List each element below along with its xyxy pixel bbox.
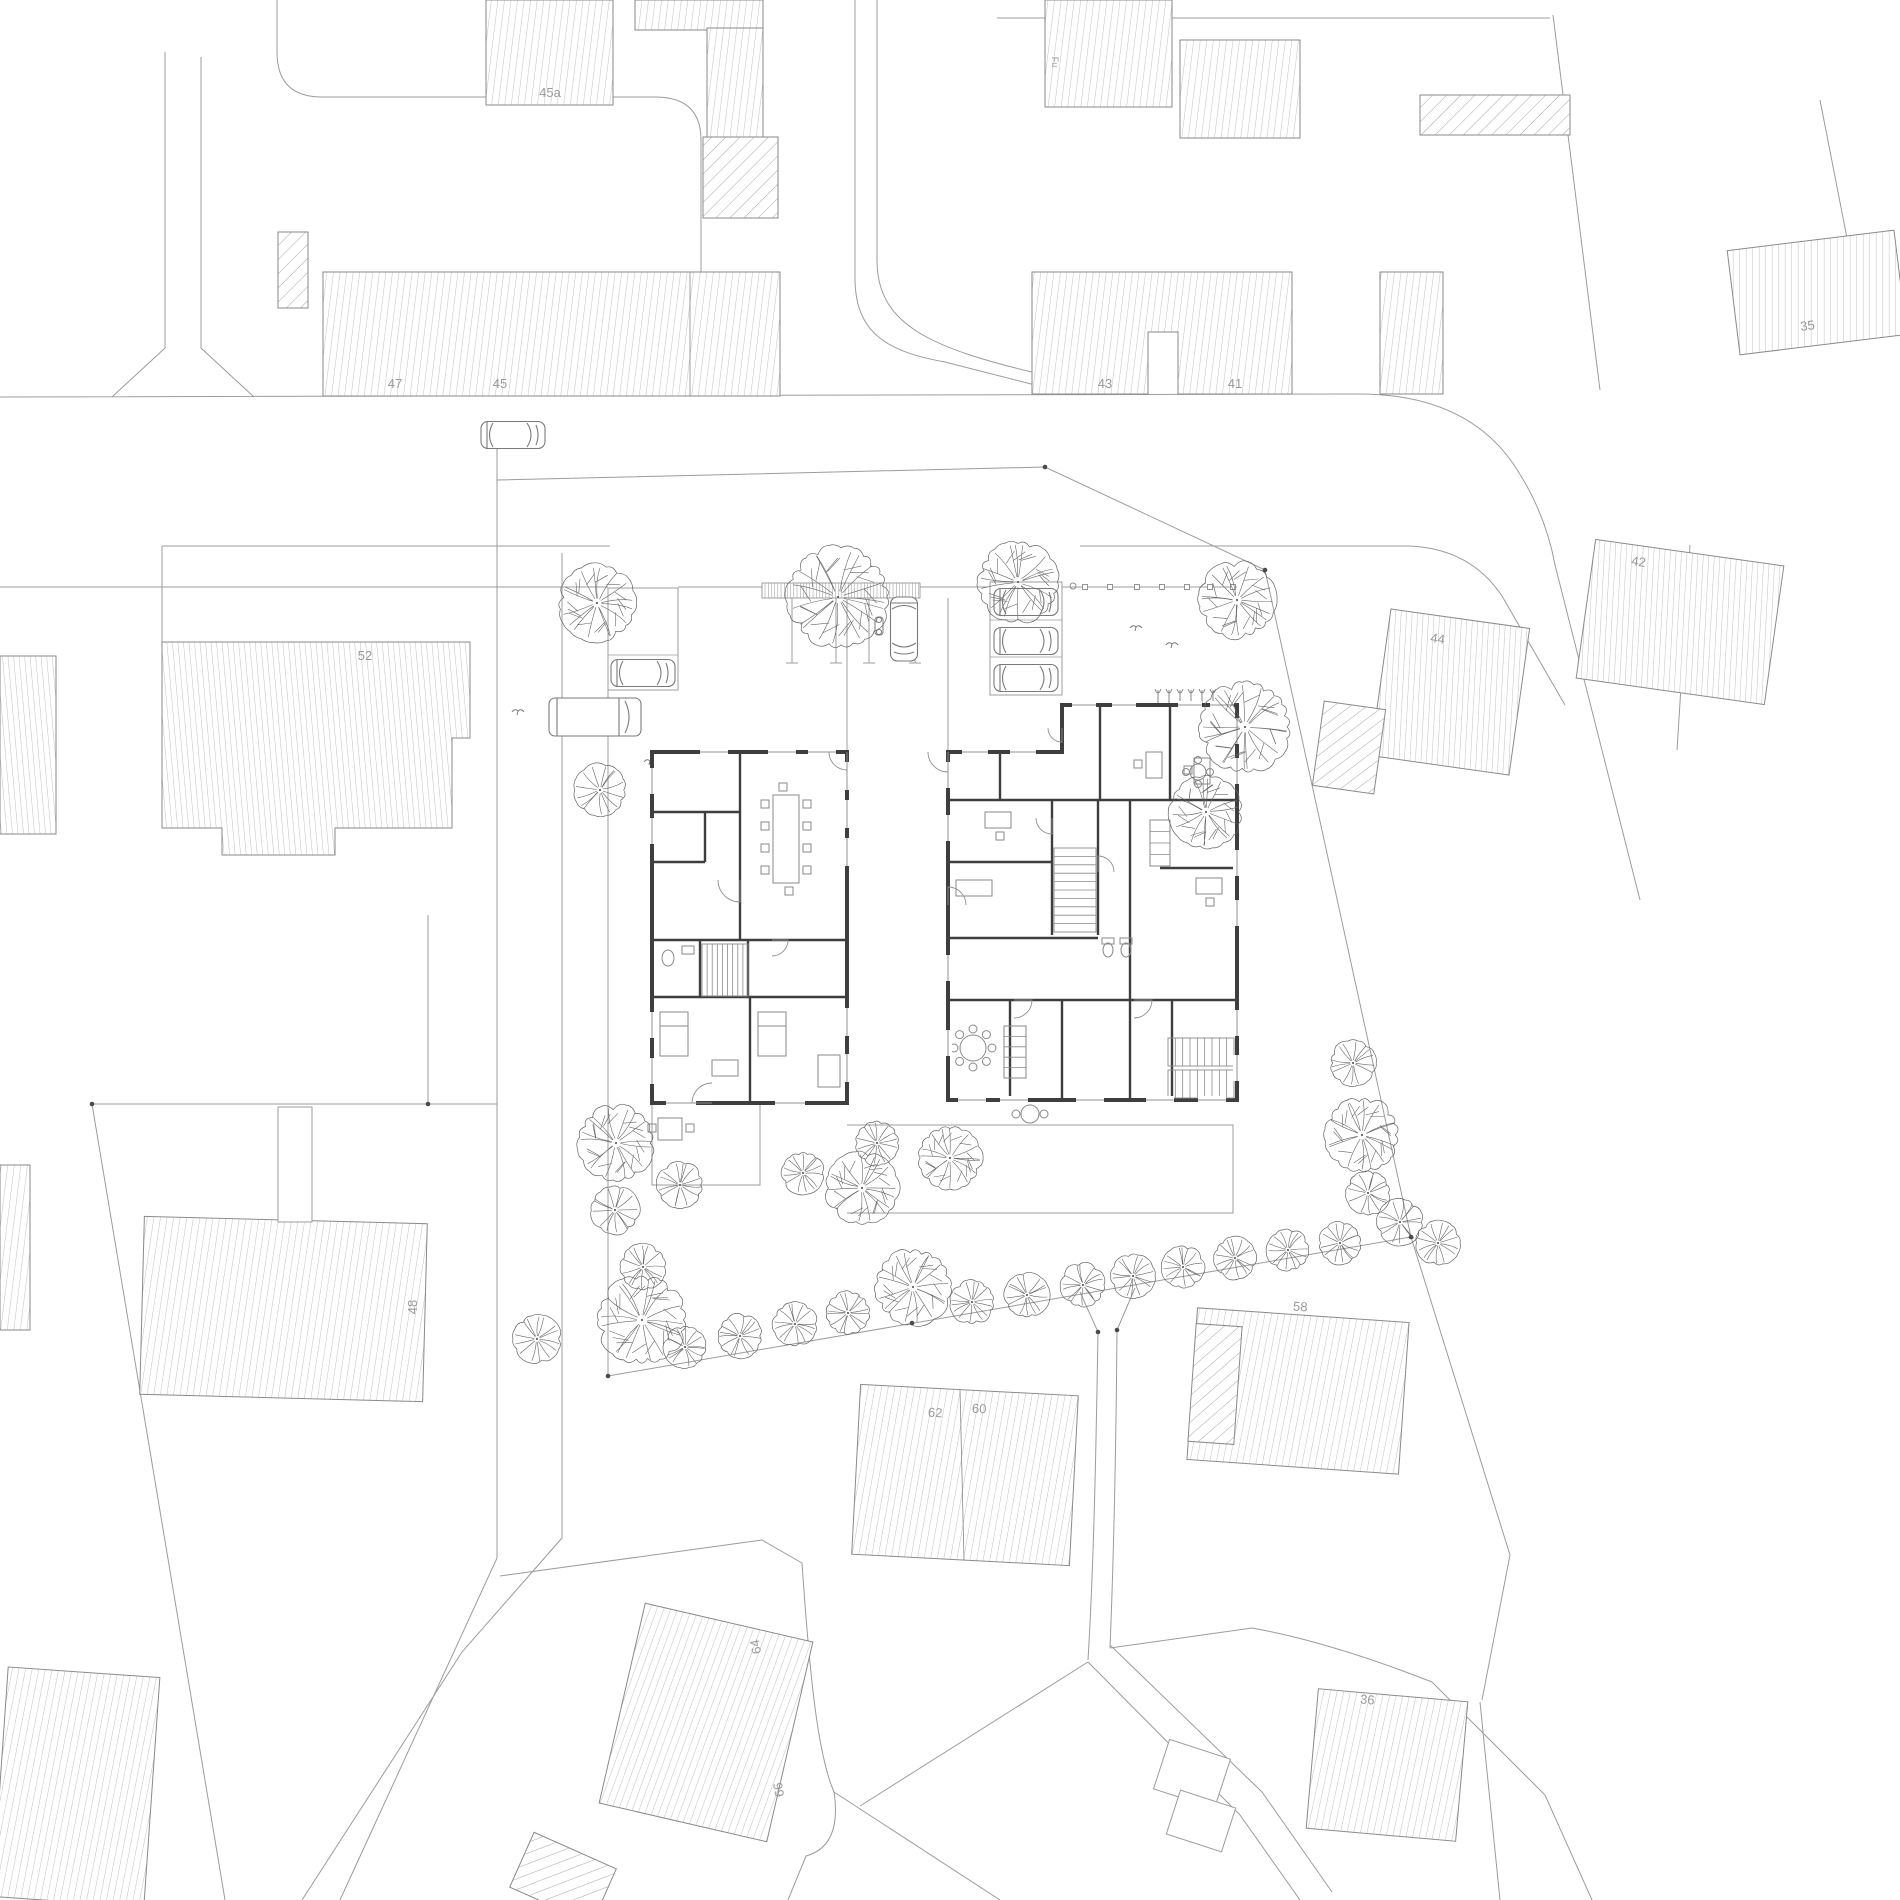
tree-icon [513,1314,561,1363]
flower-icon [1155,689,1161,703]
fence-post [1108,585,1113,590]
neighbor-building [599,1603,813,1841]
house-number-label: 41 [1228,376,1242,391]
tree-icon [1004,1272,1050,1317]
site-plan-drawing: 45a47454341Fu3552444248626058646636 [0,0,1900,1900]
house-number-label: 45 [493,376,507,391]
car-icon [611,660,675,687]
boundary-dot [1096,1330,1101,1335]
house-number-label: 42 [1630,553,1646,570]
tree-icon [826,1291,869,1335]
house-number-label: 58 [1293,1299,1308,1315]
neighbor-building [707,28,763,138]
tree-icon [772,1302,817,1346]
road-line [1088,1332,1098,1660]
fence-post [1135,585,1140,590]
tree-icon [874,1250,951,1327]
tree-icon [1324,1099,1398,1172]
boundary-dot [910,1321,915,1326]
flower-icon [1166,689,1172,703]
tree-icon [781,1152,824,1195]
neighbor-building [0,1165,30,1330]
tree-icon [591,1186,641,1235]
neighbor-building [1380,272,1443,394]
neighbor-building [1188,1324,1242,1445]
road-line [112,52,165,397]
neighbor-building [1420,95,1570,135]
site-plan: 45a47454341Fu3552444248626058646636 [0,0,1900,1900]
furniture [1021,1105,1039,1123]
neighbor-building [162,642,470,855]
neighbor-building [1576,539,1784,704]
road-line [652,1103,760,1185]
neighbor-building [635,0,763,30]
road-line [855,0,1035,385]
furniture [658,1118,682,1140]
neighbor-building [1370,609,1529,775]
road-line [1080,1292,1098,1332]
road-line [1117,1288,1135,1330]
furniture [686,1124,694,1132]
road-line [1553,15,1600,390]
boundary-dot [426,1102,431,1107]
house-number-label: 52 [358,648,372,663]
fence-post [1083,585,1088,590]
tree-icon [718,1313,761,1359]
neighbor-building [510,1832,617,1900]
bird-icon [1130,626,1142,631]
neighbor-building [703,137,778,218]
furniture [1012,1110,1020,1118]
tree-icon [950,1280,993,1324]
car-icon [481,422,545,449]
road-line [834,1792,1000,1900]
road-line [847,1125,1233,1213]
fence-post [1208,585,1213,590]
fence-post [1160,585,1165,590]
tree-icon [1319,1221,1360,1265]
site-marker [1070,583,1076,589]
tree-icon [559,563,637,643]
bird-icon [1166,643,1178,648]
neighbor-building [852,1384,1079,1565]
road-line [860,1662,1088,1806]
house-number-label: 64 [747,1638,764,1655]
boundary-dot [1409,1235,1414,1240]
neighbor-building [140,1216,428,1401]
main-building-left [648,748,851,1140]
flower-icon [1210,689,1216,703]
boundary-dot [1115,1328,1120,1333]
road-line [1480,1702,1500,1900]
tree-icon [1266,1229,1309,1271]
tree-icon [1416,1220,1461,1265]
van-icon [549,698,641,736]
neighbor-building [1727,230,1900,355]
main-buildings-layer [648,701,1241,1140]
house-number-label: 45a [539,85,561,100]
outline-building [1166,1790,1235,1852]
car-icon [994,628,1058,655]
house-number-label: 60 [972,1401,987,1417]
flower-icon [1188,689,1194,703]
car-icon [994,665,1058,692]
house-number-label: 44 [1429,630,1445,647]
neighbor-building [1045,0,1172,107]
tree-icon [856,1121,899,1166]
boundary-dot [90,1102,95,1107]
flower-icon [1177,689,1183,703]
tree-icon [574,763,625,817]
house-number-label: 47 [388,376,402,391]
door-arc [1048,728,1062,742]
tree-icon [1161,1246,1205,1288]
car-icon [891,597,918,661]
tree-icon [597,1276,685,1363]
road-line [1411,1237,1510,1700]
tree-icon [918,1127,983,1190]
outline-building [278,1107,312,1222]
house-number-label: Fu [1050,57,1060,68]
tree-icon [577,1104,654,1181]
boundary-dot [606,1374,611,1379]
boundary-dot [1043,465,1048,470]
boundary-dot [1263,568,1268,573]
road-line [201,57,254,397]
tree-icon [663,1326,706,1368]
neighbor-building [278,232,308,308]
house-number-label: 62 [928,1405,943,1421]
road-line [1110,1330,1117,1648]
neighbor-building [0,656,56,834]
neighbor-building [1312,701,1385,794]
tree-icon [1214,1236,1257,1280]
neighbor-building [1032,272,1292,394]
road-line [500,1540,762,1576]
house-number-label: 36 [1360,1691,1376,1707]
neighbor-building [1306,1689,1468,1842]
neighbor-building [0,1667,160,1900]
tree-icon [1346,1171,1390,1215]
tree-icon [1060,1262,1105,1307]
house-number-label: 66 [770,1781,787,1798]
house-number-label: 48 [405,1300,420,1314]
fence-post [1185,585,1190,590]
main-building-right [928,701,1241,1123]
flower-icon [1199,689,1205,703]
neighbor-building [1180,40,1300,138]
bird-icon [512,710,524,715]
tree-icon [620,1243,666,1290]
house-number-label: 43 [1098,376,1112,391]
furniture [1040,1110,1048,1118]
road-line [877,0,1040,374]
house-number-label: 35 [1799,317,1815,334]
